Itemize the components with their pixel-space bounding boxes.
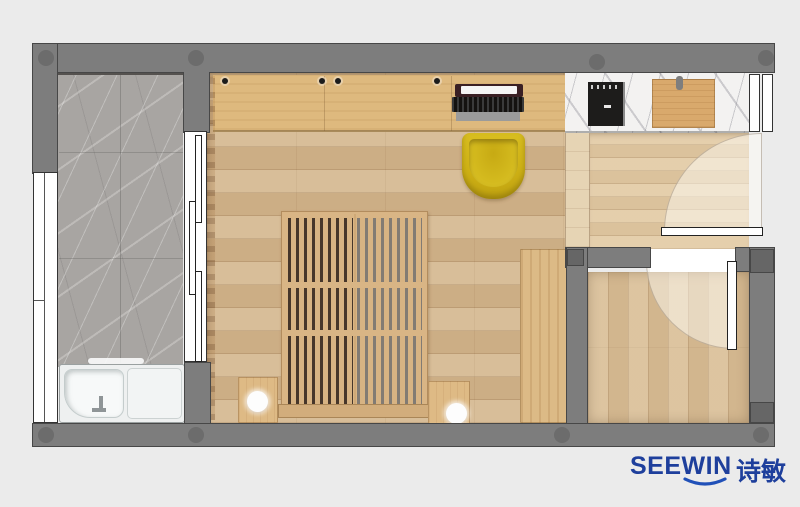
bed-slats-right [357,218,422,404]
bed-footboard [278,404,430,418]
bathroom-door-threshold [650,249,737,272]
wall-column [188,50,204,66]
entry-sidelight-window [762,74,773,132]
cooktop-display [604,105,611,108]
sliding-door-panel [195,271,202,362]
balcony-tile-joint [120,75,121,363]
wall-column [753,427,769,443]
wall-bottom [32,423,775,447]
entry-door-leaf [661,227,763,236]
desk-knob [222,78,228,84]
wall-column [554,427,570,443]
sliding-door-panel [195,135,202,223]
floor-plan-canvas: SEEWIN 诗敏 [0,0,800,507]
desk-knob [434,78,440,84]
balcony-tile-joint [59,258,183,259]
wall-balcony-divider-top [183,72,210,133]
cooktop-controls [591,85,621,89]
wall-column [750,402,774,423]
wall-column [188,427,204,443]
desk-knob [319,78,325,84]
wall-column [38,50,54,66]
balcony-tile-joint [59,152,183,153]
wardrobe [520,249,567,423]
wall-right [749,247,775,424]
brand-logo-text-zh: 诗敏 [736,452,786,488]
bed-slat-break [284,330,425,336]
wall-column [758,50,774,66]
table-lamp-right [446,403,467,424]
desk-knob [335,78,341,84]
laptop-keyboard [452,97,524,112]
bathroom-door-leaf [727,261,737,350]
chair-seat [469,139,518,187]
wall-column [750,249,774,273]
bed-center-rail [354,214,356,404]
laptop-screen-panel [461,86,517,94]
wall-column [589,54,605,70]
brand-logo: SEEWIN 诗敏 [630,452,790,492]
cutting-board [652,79,715,128]
window-left-mullion [44,173,45,422]
bed-slats-left [288,218,353,404]
desk-pad [456,112,520,121]
yellow-tub-chair [462,133,525,199]
wall-column [567,249,584,266]
window-left-divider [34,300,44,301]
window-left [33,172,58,423]
wall-balcony-divider-bottom [184,362,211,424]
wall-column [38,427,54,443]
smile-swoosh-icon [682,477,728,489]
hallway-floor-strip [565,133,590,247]
table-lamp-left [247,391,268,412]
wall-top [32,43,775,73]
cutting-board-handle [676,76,683,90]
wall-bathroom-west [566,247,588,424]
faucet-spout [92,408,106,412]
entry-sidelight-window [749,74,760,132]
desk-seam [324,76,325,131]
bathtub-deck [127,368,182,419]
bed-slat-break [284,282,425,288]
